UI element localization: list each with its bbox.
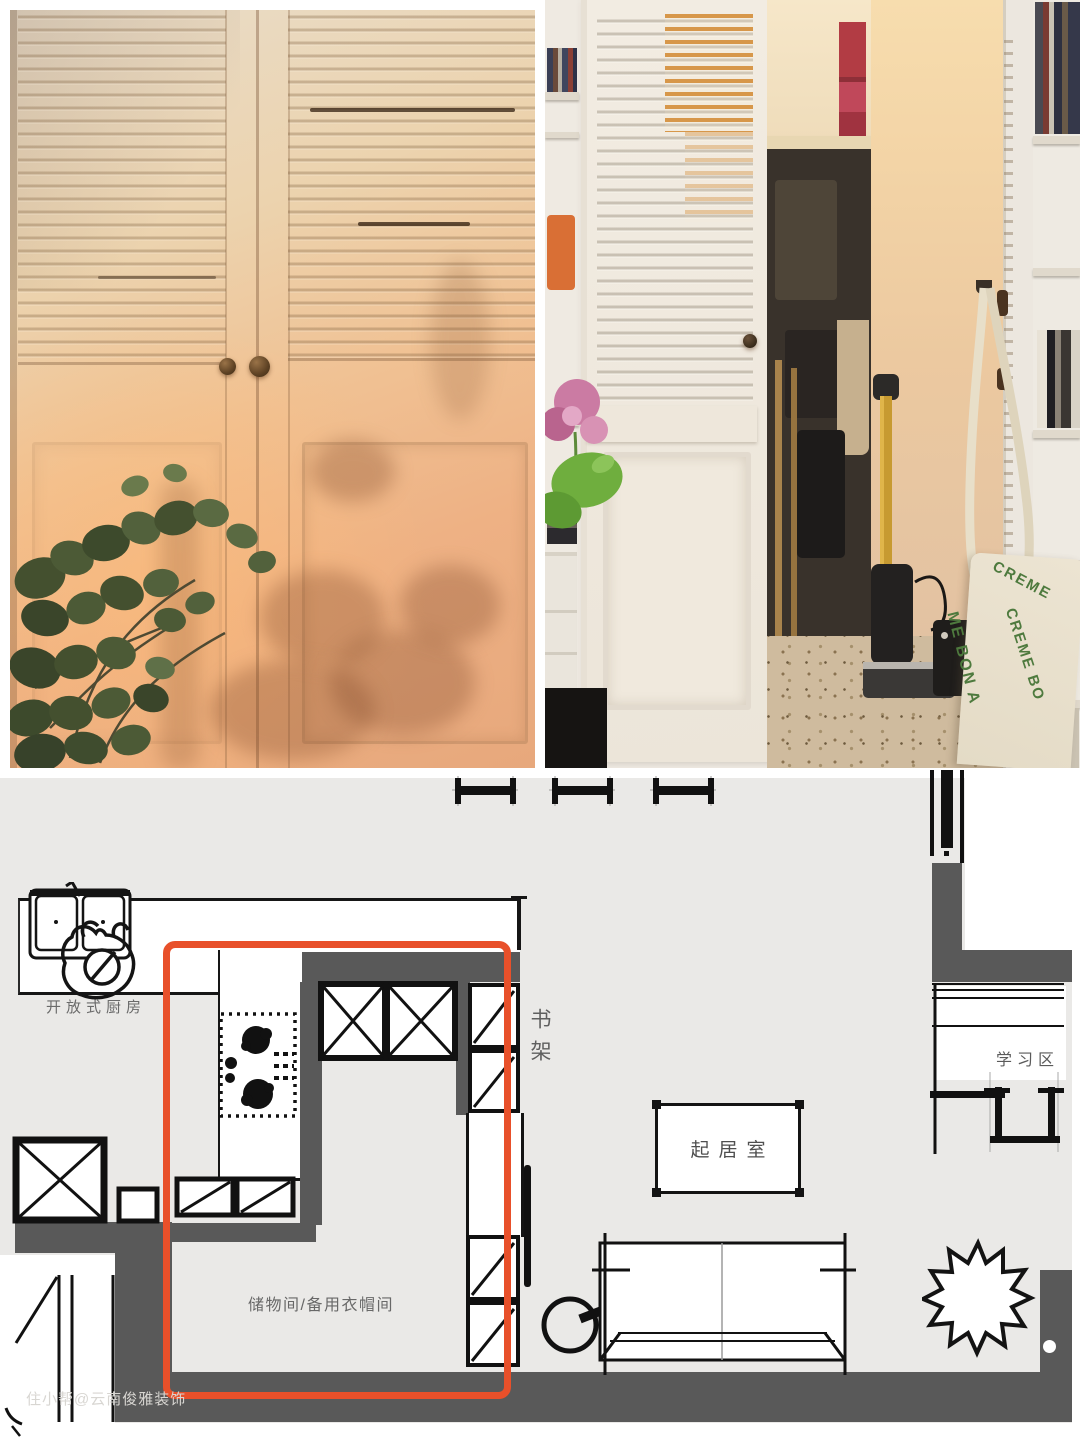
interior-item xyxy=(775,180,837,300)
small-cabinet-box xyxy=(116,1186,160,1224)
bag-straps xyxy=(960,286,1080,576)
left-wall-band xyxy=(15,1222,115,1253)
book-spines xyxy=(1035,2,1080,134)
table-corner xyxy=(652,1188,661,1197)
counter-end-line xyxy=(517,898,521,950)
louver-bottom-rail xyxy=(18,362,226,365)
right-step-wall xyxy=(1040,1270,1072,1380)
kitchen-label: 开放式厨房 xyxy=(46,996,146,1017)
living-room-label: 起居室 xyxy=(681,1135,774,1162)
column-symbol xyxy=(549,776,615,806)
column-symbol xyxy=(452,776,518,806)
margin xyxy=(0,1423,1080,1440)
drawer-line xyxy=(545,610,577,613)
stool-leg xyxy=(775,360,782,640)
interior-shelf-edge xyxy=(767,136,871,149)
shelf-board xyxy=(545,132,579,138)
photo-storage-room: CREME CREME BO ME BON A xyxy=(545,0,1080,768)
counter-end-tick xyxy=(511,896,527,899)
study-area-label: 学习区 xyxy=(996,1046,1059,1070)
person-doodle xyxy=(58,915,150,1003)
door-knob xyxy=(743,334,757,348)
storage-highlight-box xyxy=(163,941,511,1399)
shelf-board xyxy=(1033,268,1080,276)
open-slat-slit xyxy=(358,222,470,226)
window-wall-horizontal xyxy=(962,950,1072,982)
table-corner xyxy=(795,1188,804,1197)
right-door-louvers xyxy=(288,10,535,358)
book-spines xyxy=(547,48,577,92)
floor-plan: 起居室 开放式厨房 书架 学习区 储物间/备用衣帽间 住小帮@云南俊雅装饰 xyxy=(0,770,1080,1440)
drawer-cabinet xyxy=(545,552,577,700)
eucalyptus-plant xyxy=(10,368,355,768)
suitcase xyxy=(797,430,845,558)
table-corner xyxy=(652,1100,661,1109)
wardrobe-x-box xyxy=(12,1136,108,1224)
watermark: 住小帮@云南俊雅装饰 xyxy=(26,1388,186,1409)
wall-knob-circle xyxy=(1043,1340,1056,1353)
leaf-shadow xyxy=(400,565,500,645)
louver-bottom-rail xyxy=(288,358,535,361)
entry-door-drawing xyxy=(0,1250,130,1440)
open-slat-slit xyxy=(310,108,515,112)
amber-light-slits xyxy=(685,132,753,222)
dark-table-corner xyxy=(545,688,607,768)
orange-item xyxy=(547,215,575,290)
table-corner xyxy=(795,1100,804,1109)
sofa-symbol xyxy=(530,1225,875,1390)
shelf-board xyxy=(545,92,579,100)
red-boxes xyxy=(839,22,866,136)
post-image: CREME CREME BO ME BON A xyxy=(0,0,1080,1440)
amber-light-slits xyxy=(665,14,753,132)
peony-flowers xyxy=(545,372,630,542)
living-room-table: 起居室 xyxy=(655,1103,801,1194)
left-door-louvers xyxy=(18,10,226,362)
open-slat-slit xyxy=(98,276,216,279)
plant-scribble xyxy=(922,1238,1036,1362)
leaves xyxy=(10,462,278,768)
tote-bag: CREME CREME BO ME BON A xyxy=(960,280,1080,768)
bookshelf-label: 书架 xyxy=(524,1008,554,1072)
drawer-line xyxy=(545,652,577,655)
leaf-shadow xyxy=(430,260,490,420)
shelf-board xyxy=(1033,136,1080,144)
storage-room-label: 储物间/备用衣帽间 xyxy=(248,1291,394,1315)
window-symbol xyxy=(926,770,1076,865)
storage-doorway xyxy=(767,0,871,640)
window-wall-vertical xyxy=(932,863,962,982)
photo-louver-doors-sunset xyxy=(10,10,535,768)
column-symbol xyxy=(650,776,716,806)
